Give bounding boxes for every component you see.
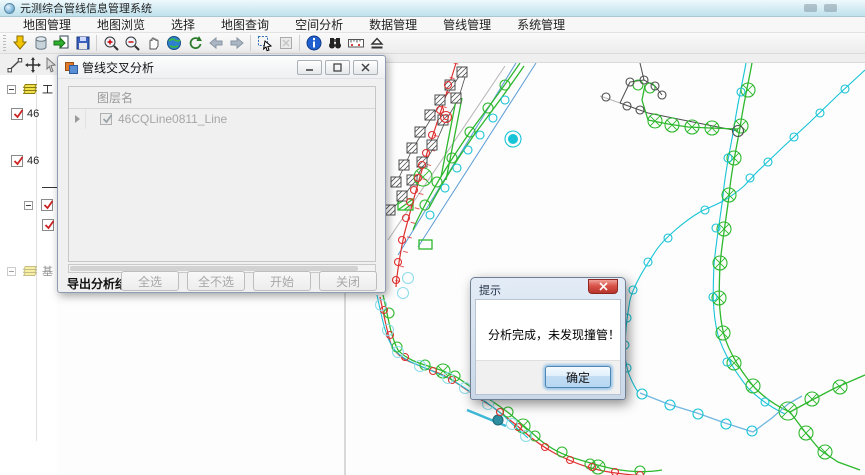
layer-grid[interactable]: 图层名 46CQLine0811_Line xyxy=(68,86,376,262)
layer-tree-item[interactable] xyxy=(42,216,54,234)
layer-group-icon xyxy=(24,84,38,95)
layer-tree-item[interactable] xyxy=(24,196,53,214)
close-icon[interactable] xyxy=(824,4,837,12)
message-text: 分析完成，未发现撞管！ xyxy=(488,326,620,343)
layer-tree-item[interactable] xyxy=(42,178,58,196)
find-icon[interactable] xyxy=(324,34,345,53)
layer-tree-item[interactable]: 基 xyxy=(7,262,53,280)
row-label: 46CQLine0811_Line xyxy=(118,112,227,126)
line-symbol xyxy=(42,187,58,188)
menu-item-2[interactable]: 地图浏览 xyxy=(84,16,158,33)
menu-item-8[interactable]: 系统管理 xyxy=(504,16,578,33)
toolbar-separator xyxy=(250,35,251,51)
select-all-button[interactable]: 全选 xyxy=(121,271,179,291)
layer-tree-item[interactable]: 工 xyxy=(7,80,53,98)
forward-icon[interactable] xyxy=(226,34,247,53)
dialog-maximize-button[interactable] xyxy=(325,60,350,75)
prompt-message-box: 提示 分析完成，未发现撞管！ 确定 xyxy=(470,277,626,400)
layer-checkbox[interactable] xyxy=(11,108,23,120)
message-box-title: 提示 xyxy=(479,282,501,298)
layer-tree-item[interactable]: 46 xyxy=(11,105,39,123)
minimize-icon[interactable] xyxy=(804,4,817,12)
measure-icon[interactable] xyxy=(345,34,366,53)
window-controls[interactable] xyxy=(804,4,837,12)
close-button[interactable]: 关闭 xyxy=(319,271,377,291)
refresh-icon[interactable] xyxy=(184,34,205,53)
zoom-out-icon[interactable] xyxy=(121,34,142,53)
dialog-title-bar[interactable]: 管线交叉分析 xyxy=(58,56,385,79)
layer-checkbox[interactable] xyxy=(42,219,54,231)
grid-row[interactable]: 46CQLine0811_Line xyxy=(69,109,375,129)
layer-tree-item[interactable]: 46 xyxy=(11,152,39,170)
database-icon[interactable] xyxy=(30,34,51,53)
window-title: 元测综合管线信息管理系统 xyxy=(20,0,152,16)
menu-item-7[interactable]: 管线管理 xyxy=(430,16,504,33)
grid-header-label: 图层名 xyxy=(97,89,133,106)
back-icon[interactable] xyxy=(205,34,226,53)
pipeline-cross-analysis-dialog: 管线交叉分析 图层名 46CQLine0811_Line 导出分析结果... 全… xyxy=(57,55,386,293)
row-checkbox[interactable] xyxy=(100,113,112,125)
menu-item-5[interactable]: 空间分析 xyxy=(282,16,356,33)
pan-icon[interactable] xyxy=(142,34,163,53)
export-icon[interactable] xyxy=(51,34,72,53)
menu-bar: 地图管理地图浏览选择地图查询空间分析数据管理管线管理系统管理 xyxy=(0,17,865,33)
dialog-form-icon xyxy=(65,62,76,72)
menu-item-4[interactable]: 地图查询 xyxy=(208,16,282,33)
identify-icon[interactable] xyxy=(303,34,324,53)
layer-group-label: 基 xyxy=(42,263,53,279)
toolbar-separator xyxy=(96,35,97,51)
select-icon[interactable] xyxy=(254,34,275,53)
clear-selection-icon[interactable] xyxy=(275,34,296,53)
app-logo-icon xyxy=(4,3,15,14)
move-icon[interactable] xyxy=(24,55,42,74)
collapse-icon[interactable] xyxy=(7,267,16,276)
zoom-in-icon[interactable] xyxy=(100,34,121,53)
layer-panel: 工4646基 xyxy=(0,63,57,475)
collapse-icon[interactable] xyxy=(7,85,16,94)
message-box-close-button[interactable] xyxy=(588,279,618,294)
layer-checkbox[interactable] xyxy=(41,199,53,211)
layer-label: 46 xyxy=(27,108,39,120)
dialog-close-button[interactable] xyxy=(353,60,378,75)
close-icon xyxy=(599,282,608,291)
save-icon[interactable] xyxy=(72,34,93,53)
dialog-title: 管线交叉分析 xyxy=(82,59,154,76)
layer-label: 46 xyxy=(27,155,39,167)
main-toolbar xyxy=(0,33,865,54)
tree-indent-guide xyxy=(36,71,37,441)
layer-group-label: 工 xyxy=(42,81,53,97)
menu-item-3[interactable]: 选择 xyxy=(158,16,208,33)
menu-item-1[interactable]: 地图管理 xyxy=(10,16,84,33)
menu-item-6[interactable]: 数据管理 xyxy=(356,16,430,33)
add-data-icon[interactable] xyxy=(9,34,30,53)
start-button[interactable]: 开始 xyxy=(253,271,311,291)
ok-button[interactable]: 确定 xyxy=(545,366,611,388)
layer-checkbox[interactable] xyxy=(11,155,23,167)
edit-toolbar xyxy=(0,54,57,75)
message-box-body: 分析完成，未发现撞管！ 确定 xyxy=(475,299,621,395)
deselect-all-button[interactable]: 全不选 xyxy=(187,271,245,291)
toolbar-separator xyxy=(299,35,300,51)
grid-header-row: 图层名 xyxy=(69,87,375,109)
full-extent-icon[interactable] xyxy=(163,34,184,53)
title-bar: 元测综合管线信息管理系统 xyxy=(0,0,865,17)
dialog-minimize-button[interactable] xyxy=(297,60,322,75)
application-window: 元测综合管线信息管理系统 地图管理地图浏览选择地图查询空间分析数据管理管线管理系… xyxy=(0,0,865,475)
collapse-icon[interactable] xyxy=(24,201,33,210)
toolbar-grip[interactable] xyxy=(3,35,6,51)
layer-group-icon xyxy=(24,266,38,277)
overlay-icon[interactable] xyxy=(366,34,387,53)
draw-line-icon[interactable] xyxy=(6,55,24,74)
row-marker-icon xyxy=(69,109,86,129)
